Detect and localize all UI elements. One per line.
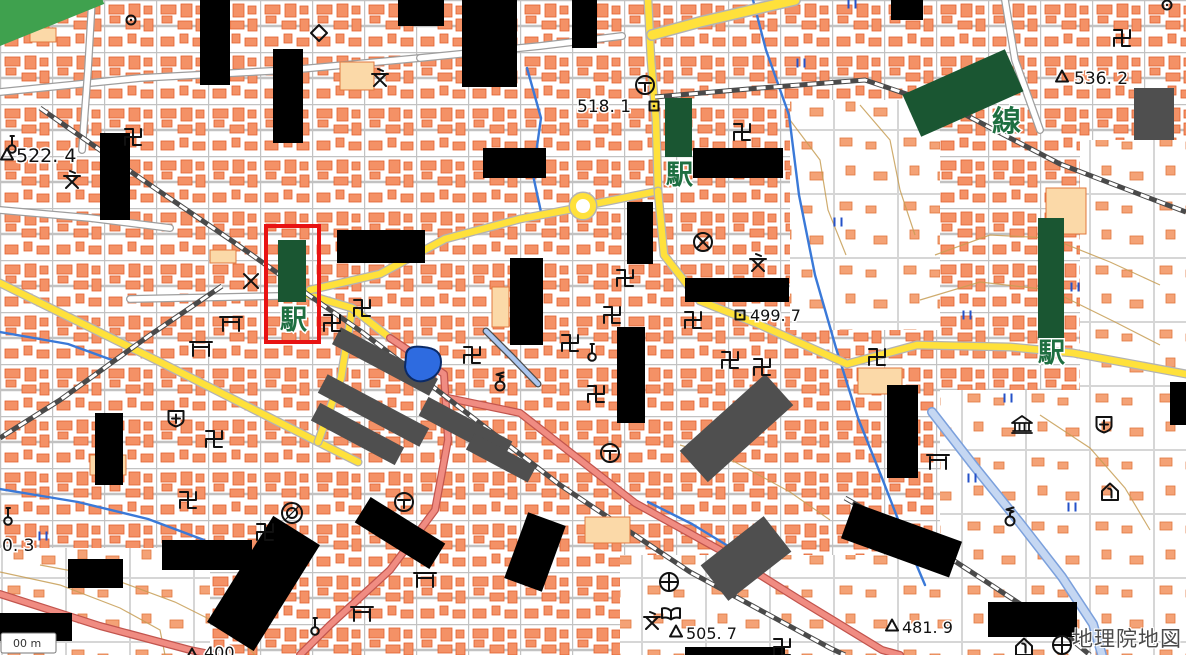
hill-area	[790, 100, 940, 330]
redaction-box	[617, 327, 645, 423]
station-box	[1038, 218, 1064, 340]
map-viewport[interactable]: 522. 4518. 1536. 2499. 7505. 7481. 90. 3…	[0, 0, 1186, 655]
map-canvas[interactable]: 522. 4518. 1536. 2499. 7505. 7481. 90. 3…	[0, 0, 1186, 655]
elevation-label: 400	[204, 643, 235, 655]
station-name-label: 駅	[666, 160, 693, 191]
large-building	[492, 287, 509, 327]
health-icon	[1053, 636, 1071, 654]
station-box	[665, 98, 692, 157]
station-name-label: 線	[992, 104, 1021, 138]
redaction-box	[572, 0, 597, 48]
elevation-label: 522. 4	[16, 145, 76, 167]
redaction-box	[337, 230, 425, 263]
redaction-box	[95, 413, 123, 485]
redaction-box	[398, 0, 444, 26]
scalebar-label: 00 m	[13, 637, 41, 650]
health-icon	[660, 573, 678, 591]
redaction-box	[483, 148, 546, 178]
redaction-box	[68, 559, 123, 588]
scalebar-layer: 00 m	[1, 633, 56, 653]
redaction-box	[162, 540, 252, 570]
elevation-label: 536. 2	[1074, 69, 1128, 89]
redaction-box	[627, 202, 653, 264]
redaction-box	[685, 647, 785, 655]
elevation-label: 499. 7	[750, 306, 801, 325]
station-name-label: 駅	[1038, 338, 1065, 369]
elevation-label: 518. 1	[577, 97, 631, 117]
gray-redaction-box	[1134, 88, 1174, 140]
redaction-box	[273, 49, 303, 143]
redaction-box	[685, 278, 789, 302]
station-box	[278, 240, 306, 302]
redaction-box	[887, 385, 918, 478]
elevation-label: 0. 3	[2, 536, 34, 556]
hill-area	[620, 555, 950, 655]
large-building	[585, 517, 630, 543]
large-building	[210, 250, 236, 263]
redaction-box	[891, 0, 923, 20]
redaction-box	[200, 0, 230, 85]
station-name-label: 駅	[280, 305, 307, 336]
gsi-watermark: 地理院地図	[1072, 623, 1182, 653]
redaction-box	[462, 0, 517, 87]
large-building	[340, 62, 374, 90]
redaction-box	[1170, 382, 1186, 425]
roundabout	[573, 196, 593, 216]
pond	[405, 347, 441, 382]
elevation-label: 505. 7	[686, 624, 737, 643]
elevation-label: 481. 9	[902, 618, 953, 637]
redaction-box	[510, 258, 543, 345]
redaction-box	[988, 602, 1077, 637]
pond-layer	[405, 347, 441, 382]
redaction-box	[693, 148, 783, 178]
redaction-box	[100, 133, 130, 220]
